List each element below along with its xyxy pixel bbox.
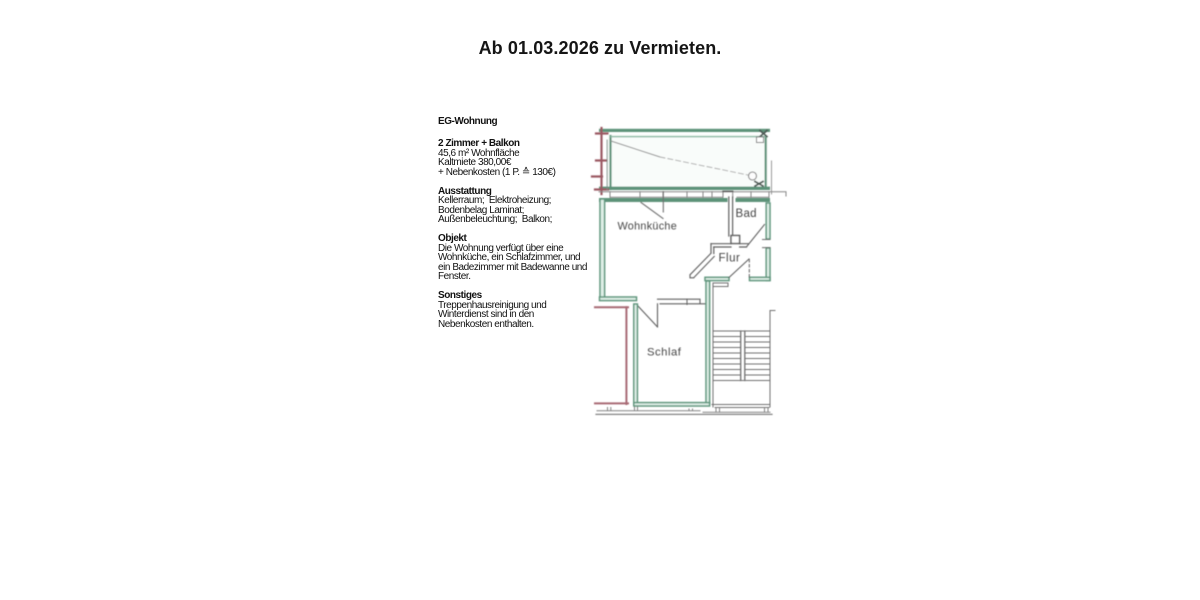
svg-text:Bad: Bad (736, 208, 757, 220)
svg-text:Flur: Flur (719, 253, 741, 265)
svg-text:Wohnküche: Wohnküche (618, 221, 678, 233)
svg-text:Schlaf: Schlaf (647, 347, 682, 359)
